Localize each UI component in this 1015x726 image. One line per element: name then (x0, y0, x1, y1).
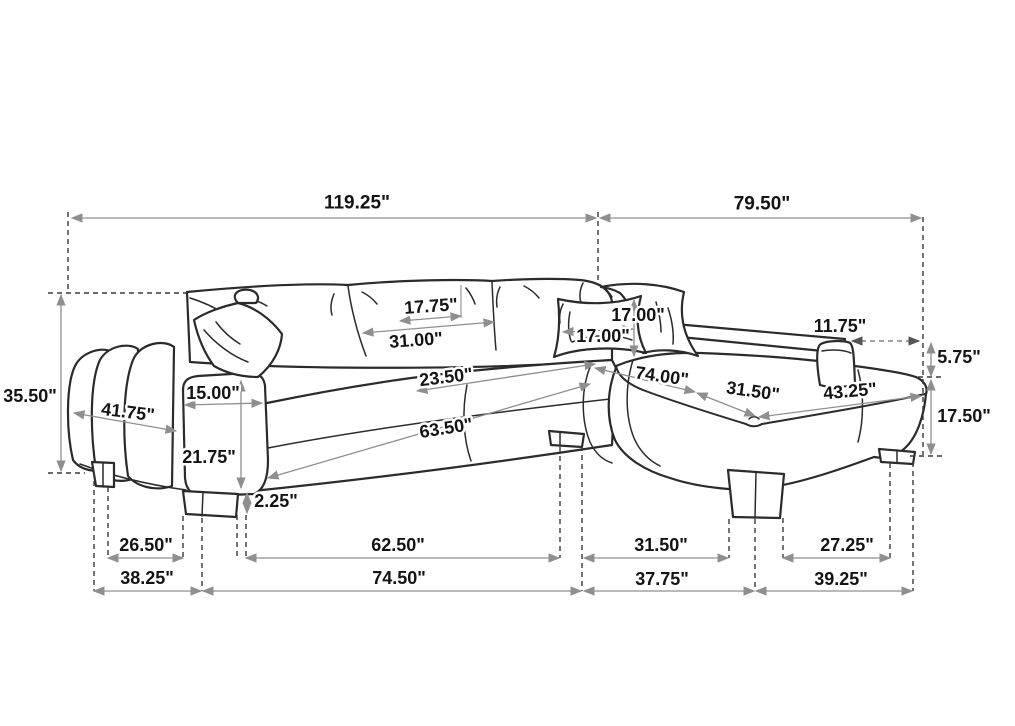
dim-label-pillow-height: 17.00" (611, 305, 665, 325)
dim-label-back-cushion-width: 31.00" (389, 328, 444, 352)
dim-label-base-mid-inner: 62.50" (371, 535, 425, 555)
leg-front-left (183, 491, 238, 517)
dim-label-arm-front-height: 21.75" (182, 447, 236, 467)
dim-label-arm-top-width: 15.00" (186, 383, 240, 403)
sofa-dimension-diagram: 119.25" 79.50" 35.50" 41.75" 15.00" 21.7… (0, 0, 1015, 726)
dim-label-arm-setback: 11.75" (814, 316, 867, 336)
leg-mid (549, 431, 584, 447)
dim-label-base-mid-outer: 74.50" (372, 568, 426, 588)
dim-label-base-right-outer: 37.75" (635, 569, 689, 589)
diagram-canvas: 119.25" 79.50" 35.50" 41.75" 15.00" 21.7… (0, 0, 1015, 726)
dim-label-base-left-outer: 38.25" (120, 568, 174, 588)
dim-label-seat-height: 17.50" (937, 406, 991, 426)
dim-label-back-cushion-depth: 17.75" (404, 294, 459, 318)
leg-chaise-front-edge (755, 472, 756, 518)
dim-label-base-far-inner: 27.25" (820, 535, 874, 555)
left-pillow-dogear (235, 290, 258, 303)
dim-label-overall-right: 79.50" (734, 194, 791, 215)
dim-label-base-right-inner: 31.50" (634, 535, 688, 555)
dim-label-base-left-inner: 26.50" (119, 535, 173, 555)
dim-label-leg-height: 2.25" (254, 491, 298, 511)
dim-label-arm-above-seat: 5.75" (937, 347, 981, 367)
dim-label-base-far-outer: 39.25" (814, 569, 868, 589)
dim-label-pillow-width: 17.00" (576, 326, 630, 346)
dim-label-overall-left: 119.25" (324, 193, 390, 214)
dim-label-back-height: 35.50" (3, 386, 57, 406)
leg-front-left-edge (202, 492, 203, 516)
